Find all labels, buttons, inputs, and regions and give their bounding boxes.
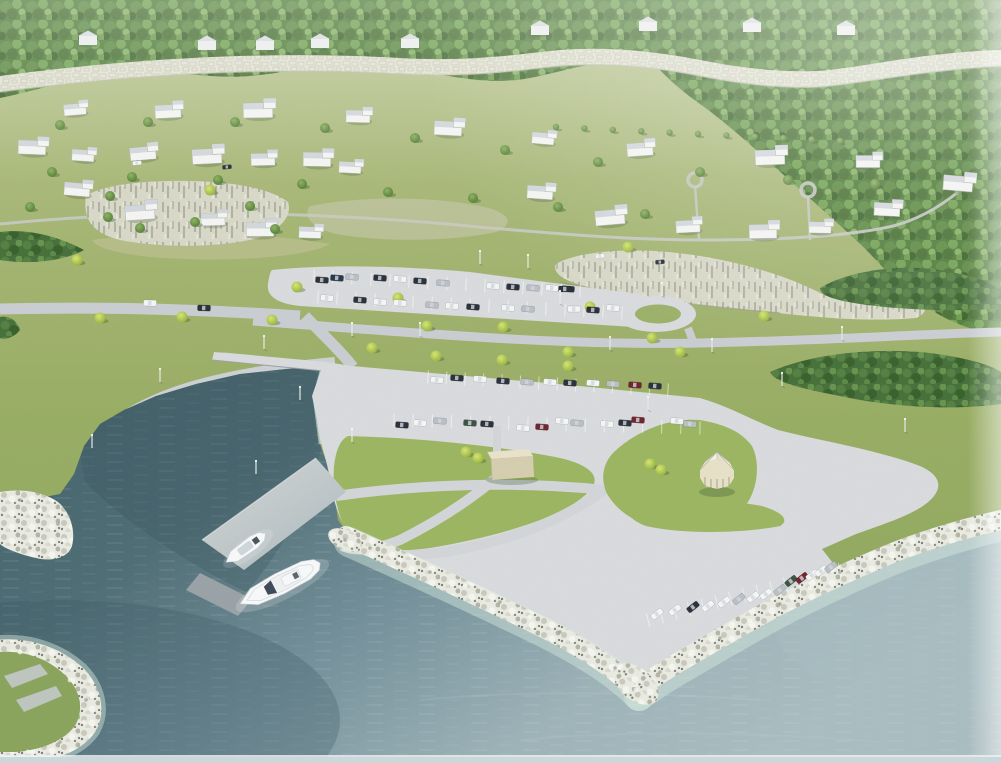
bottom-edge-line xyxy=(0,755,1001,757)
bottom-border-strip xyxy=(0,757,1001,763)
rendering-canvas xyxy=(0,0,1001,763)
scan-grain xyxy=(0,0,1001,763)
aerial-rendering xyxy=(0,0,1001,763)
